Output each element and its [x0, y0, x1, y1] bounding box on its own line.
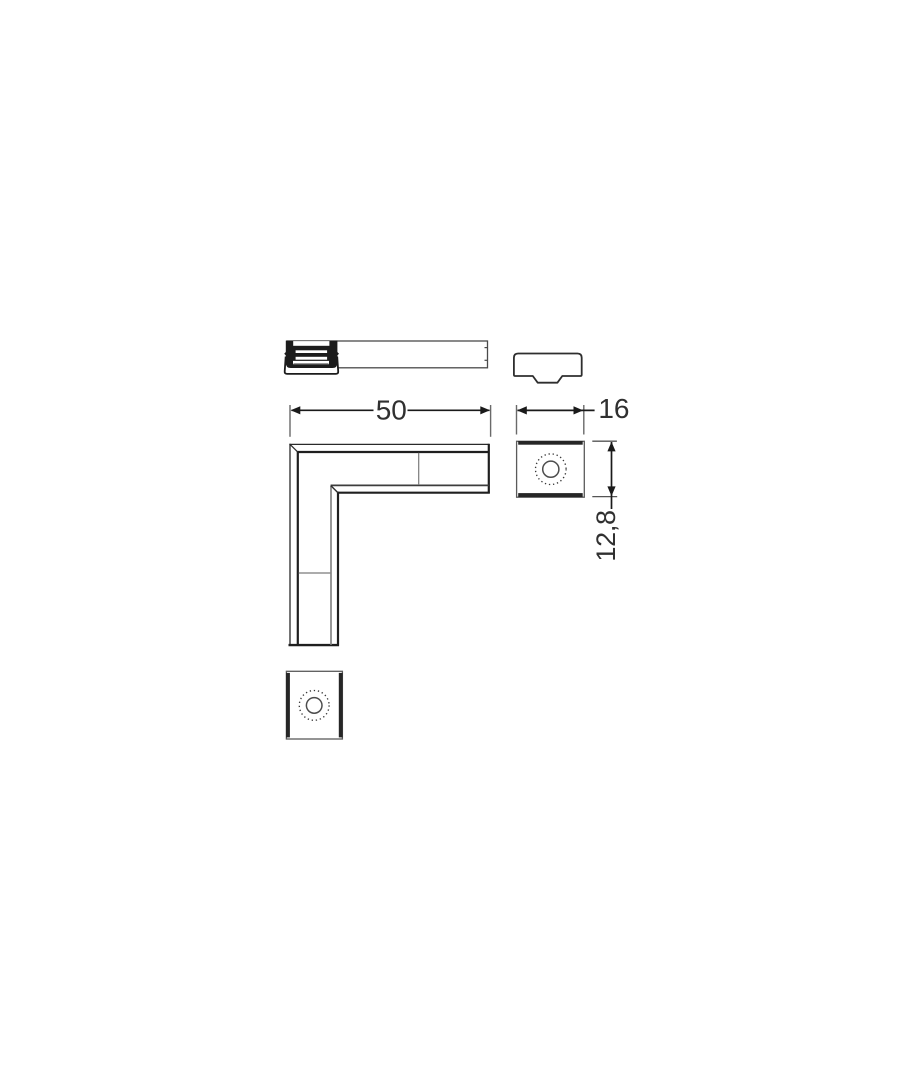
- svg-text:50: 50: [376, 394, 407, 425]
- svg-text:12,8: 12,8: [591, 510, 621, 561]
- svg-text:16: 16: [598, 393, 629, 424]
